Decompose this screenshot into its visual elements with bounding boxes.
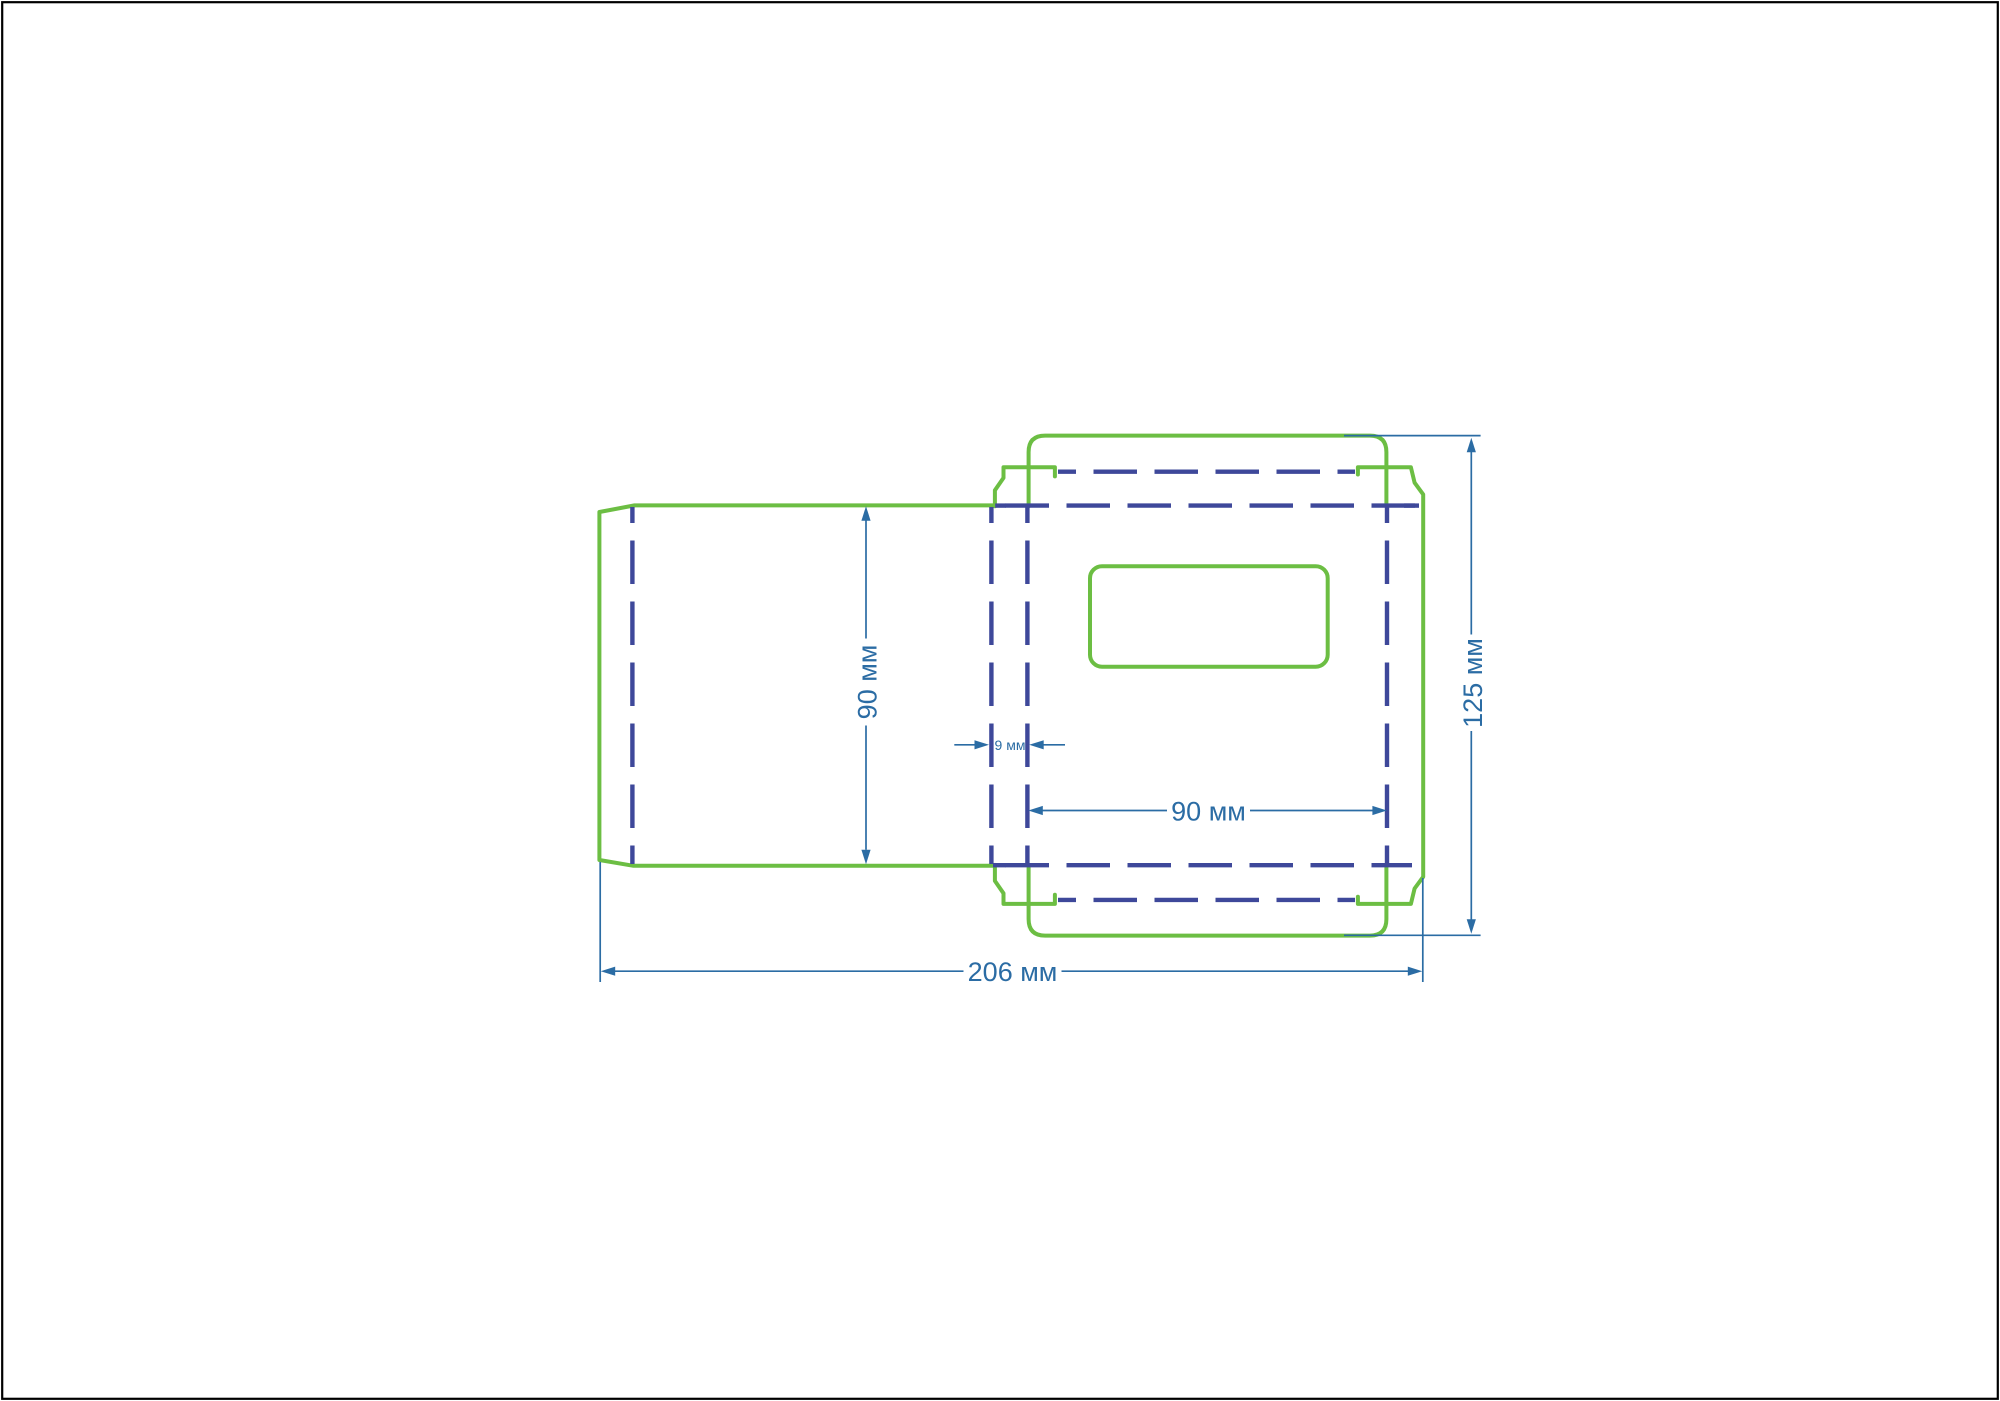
svg-text:206 мм: 206 мм xyxy=(968,957,1058,987)
svg-text:125 мм: 125 мм xyxy=(1458,638,1488,728)
svg-text:9 мм: 9 мм xyxy=(995,737,1026,753)
svg-text:90 мм: 90 мм xyxy=(853,645,883,720)
svg-text:90 мм: 90 мм xyxy=(1171,797,1246,827)
